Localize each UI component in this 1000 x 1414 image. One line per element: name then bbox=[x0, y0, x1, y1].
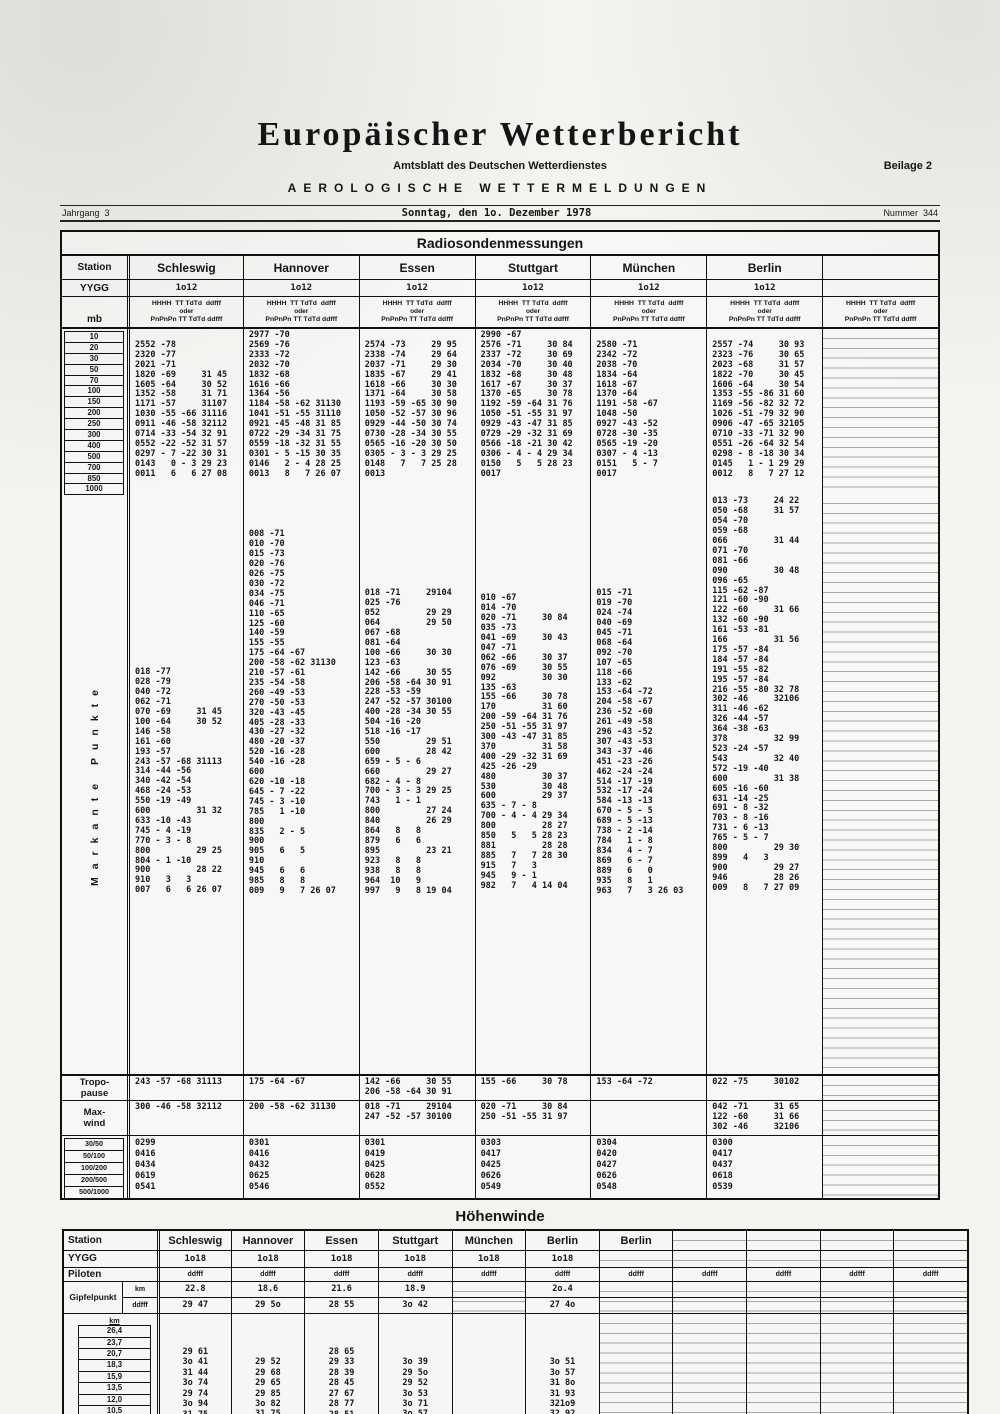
gipfel-ddfff-value bbox=[673, 1298, 746, 1313]
hw-yygg-row: YYGG 1o181o181o181o181o181o18 bbox=[64, 1250, 967, 1267]
hw-station-header-row: Station SchleswigHannoverEssenStuttgartM… bbox=[64, 1231, 967, 1250]
colhead-line1: HHHH TT TdTd ddfff bbox=[130, 299, 243, 308]
gipfelpunkt-cell: 18.629 5o bbox=[231, 1282, 305, 1313]
yygg-value: 1o12 bbox=[590, 280, 706, 296]
wind-value: 29 33 bbox=[305, 1357, 378, 1367]
wind-value: 28 65 bbox=[305, 1347, 378, 1357]
gipfel-km-value: 22.8 bbox=[160, 1282, 231, 1298]
thickness-value: 0417 bbox=[476, 1149, 591, 1160]
data-line: 153 -64 -72 bbox=[591, 1078, 706, 1088]
colhead-oder: oder bbox=[476, 308, 591, 315]
thickness-value: 0301 bbox=[244, 1138, 359, 1149]
gipfel-km-value: 18.9 bbox=[379, 1282, 452, 1298]
wind-value bbox=[526, 1347, 599, 1357]
wind-value bbox=[600, 1357, 673, 1367]
wind-value bbox=[894, 1347, 967, 1357]
thickness-value: 0546 bbox=[244, 1182, 359, 1193]
tropopause-cell: 142 -66 30 55206 -58 -64 30 91 bbox=[359, 1076, 475, 1100]
wind-value bbox=[894, 1409, 967, 1414]
tropopause-cell: 022 -75 30102 bbox=[706, 1076, 822, 1100]
wind-value bbox=[673, 1357, 746, 1367]
data-line: 982 7 4 14 04 bbox=[476, 882, 591, 892]
gipfelpunkt-label: Gipfelpunkt bbox=[64, 1282, 122, 1313]
colhead-line1: HHHH TT TdTd ddfff bbox=[244, 299, 359, 308]
wind-column bbox=[672, 1314, 746, 1414]
wind-value bbox=[600, 1347, 673, 1357]
piloten-ddfff-header: ddfff bbox=[525, 1268, 599, 1281]
wind-value bbox=[747, 1326, 820, 1336]
colhead-oder: oder bbox=[707, 308, 822, 315]
gipfelpunkt-cell bbox=[599, 1282, 673, 1313]
colhead-line1: HHHH TT TdTd ddfff bbox=[707, 299, 822, 308]
empty-column bbox=[822, 494, 938, 1074]
data-column: 2580 -712342 -722038 -701834 -641618 -67… bbox=[590, 329, 706, 494]
wind-value bbox=[821, 1409, 894, 1414]
wind-value bbox=[453, 1389, 526, 1399]
gipfel-km-value bbox=[821, 1282, 894, 1298]
spacer-line bbox=[160, 1316, 231, 1326]
colhead-line2: PnPnPn TT TdTd ddfff bbox=[823, 315, 938, 324]
thickness-column: 03030417042506260549 bbox=[475, 1136, 591, 1198]
thickness-label-column: 30/5050/100100/200200/500500/1000 bbox=[62, 1136, 127, 1198]
wind-value bbox=[821, 1368, 894, 1378]
masthead: Europäischer Wetterbericht Amtsblatt des… bbox=[0, 0, 1000, 222]
wind-value bbox=[673, 1378, 746, 1388]
colhead-line2: PnPnPn TT TdTd ddfff bbox=[476, 315, 591, 324]
wind-value bbox=[379, 1337, 452, 1347]
wind-value bbox=[600, 1399, 673, 1409]
data-line: 243 -57 -68 31113 bbox=[130, 1078, 243, 1088]
gipfel-ddfff-value bbox=[747, 1298, 820, 1313]
wind-value bbox=[673, 1409, 746, 1414]
maxwind-cell: 300 -46 -58 32112 bbox=[127, 1101, 243, 1135]
spacer-line bbox=[379, 1316, 452, 1326]
thickness-value: 0541 bbox=[130, 1182, 243, 1193]
gipfelpunkt-cell: 21.628 55 bbox=[304, 1282, 378, 1313]
thickness-value: 0618 bbox=[707, 1171, 822, 1182]
thickness-column: 03010416043206250546 bbox=[243, 1136, 359, 1198]
wind-value: 3o 57 bbox=[379, 1409, 452, 1414]
colhead-line2: PnPnPn TT TdTd ddfff bbox=[360, 315, 475, 324]
colhead-line2: PnPnPn TT TdTd ddfff bbox=[130, 315, 243, 324]
wind-value: 3o 94 bbox=[160, 1399, 231, 1409]
km-label-column: km26,423,720,718,315,913,512,010,59,07,2… bbox=[64, 1314, 157, 1414]
wind-value: 29 65 bbox=[232, 1378, 305, 1388]
gipfel-ddfff-label: ddfff bbox=[122, 1298, 157, 1313]
spacer-line bbox=[526, 1316, 599, 1326]
wind-value bbox=[453, 1347, 526, 1357]
spacer-line bbox=[747, 1316, 820, 1326]
tropopause-cell: 155 -66 30 78 bbox=[475, 1076, 591, 1100]
piloten-ddfff-header: ddfff bbox=[157, 1268, 231, 1281]
thickness-value: 0626 bbox=[591, 1171, 706, 1182]
gipfel-ddfff-value bbox=[894, 1298, 967, 1313]
wind-value bbox=[453, 1409, 526, 1414]
wind-value bbox=[453, 1357, 526, 1367]
significant-column: 008 -71010 -70015 -73020 -76026 -75030 -… bbox=[243, 494, 359, 1074]
wind-value: 3o 74 bbox=[160, 1378, 231, 1388]
gipfelpunkt-cell: 18.93o 42 bbox=[378, 1282, 452, 1313]
column-headers: HHHH TT TdTd ddfffoderPnPnPn TT TdTd ddf… bbox=[359, 297, 475, 327]
gipfelpunkt-row: Gipfelpunkt km ddfff 22.829 4718.629 5o2… bbox=[64, 1281, 967, 1313]
wind-value: 28 51 bbox=[305, 1410, 378, 1414]
significant-levels-body: Markante Punkte 018 -77028 -79040 -72062… bbox=[62, 494, 938, 1074]
wind-value bbox=[894, 1378, 967, 1388]
data-line: 0017 bbox=[591, 470, 706, 480]
gipfelpunkt-cell bbox=[746, 1282, 820, 1313]
data-line: 200 -58 -62 31130 bbox=[244, 1103, 359, 1113]
wind-value: 3o 71 bbox=[379, 1399, 452, 1409]
gipfelpunkt-cell: 2o.427 4o bbox=[525, 1282, 599, 1313]
colhead-oder: oder bbox=[130, 308, 243, 315]
wind-value: 29 52 bbox=[379, 1378, 452, 1388]
gipfel-km-value bbox=[894, 1282, 967, 1298]
colhead-line2: PnPnPn TT TdTd ddfff bbox=[244, 315, 359, 324]
yygg-label: YYGG bbox=[62, 280, 127, 296]
station-header: Schleswig bbox=[127, 256, 243, 279]
wind-value bbox=[453, 1337, 526, 1347]
piloten-ddfff-header: ddfff bbox=[378, 1268, 452, 1281]
wind-value bbox=[821, 1389, 894, 1399]
hw-station-header: Stuttgart bbox=[378, 1231, 452, 1250]
hw-station-header: Hannover bbox=[231, 1231, 305, 1250]
gipfelpunkt-cell bbox=[672, 1282, 746, 1313]
empty-column bbox=[822, 1076, 938, 1100]
gipfel-km-value: 2o.4 bbox=[526, 1282, 599, 1298]
wind-value bbox=[894, 1399, 967, 1409]
gipfelpunkt-cell: 22.829 47 bbox=[157, 1282, 231, 1313]
wind-value: 29 85 bbox=[232, 1389, 305, 1399]
wind-value bbox=[821, 1357, 894, 1367]
thickness-value: 0628 bbox=[360, 1171, 475, 1182]
column-headers: HHHH TT TdTd ddfffoderPnPnPn TT TdTd ddf… bbox=[822, 297, 938, 327]
wind-value: 3o 53 bbox=[379, 1389, 452, 1399]
wind-value bbox=[894, 1357, 967, 1367]
data-line: 155 -66 30 78 bbox=[476, 1078, 591, 1088]
yygg-value: 1o12 bbox=[359, 280, 475, 296]
wind-column: 29 613o 4131 443o 7429 743o 9431 7532 52… bbox=[157, 1314, 231, 1414]
thickness-value: 0625 bbox=[244, 1171, 359, 1182]
wind-value bbox=[821, 1378, 894, 1388]
wind-value: 28 77 bbox=[305, 1399, 378, 1409]
maxwind-cell: 042 -71 31 65122 -60 31 66302 -46 32106 bbox=[706, 1101, 822, 1135]
thickness-value: 0301 bbox=[360, 1138, 475, 1149]
yygg-value: 1o12 bbox=[127, 280, 243, 296]
data-line: 007 6 6 26 07 bbox=[130, 886, 243, 896]
empty-column bbox=[822, 1136, 938, 1198]
gipfelpunkt-cell bbox=[820, 1282, 894, 1313]
issue-date: Sonntag, den 1o. Dezember 1978 bbox=[402, 207, 592, 219]
column-headers: HHHH TT TdTd ddfffoderPnPnPn TT TdTd ddf… bbox=[127, 297, 243, 327]
thickness-value: 0304 bbox=[591, 1138, 706, 1149]
thickness-body: 30/5050/100100/200200/500500/1000 029904… bbox=[62, 1135, 938, 1198]
thickness-value: 0427 bbox=[591, 1160, 706, 1171]
dateline: Jahrgang 3 Sonntag, den 1o. Dezember 197… bbox=[60, 205, 940, 222]
wind-column bbox=[893, 1314, 967, 1414]
column-headers: HHHH TT TdTd ddfffoderPnPnPn TT TdTd ddf… bbox=[243, 297, 359, 327]
hw-yygg-value: 1o18 bbox=[378, 1251, 452, 1267]
significant-column: 018 -77028 -79040 -72062 -71070 -69 31 4… bbox=[127, 494, 243, 1074]
wind-value: 3o 82 bbox=[232, 1399, 305, 1409]
yygg-value: 1o12 bbox=[243, 280, 359, 296]
thickness-value: 0548 bbox=[591, 1182, 706, 1193]
wind-value bbox=[526, 1337, 599, 1347]
significant-column: 018 -71 29104025 -76052 29 29064 29 5006… bbox=[359, 494, 475, 1074]
pressure-level-body: 1020305070100150200250300400500700850100… bbox=[62, 327, 938, 494]
radiosonde-table-title: Radiosondenmessungen bbox=[62, 232, 938, 256]
wind-value bbox=[453, 1368, 526, 1378]
thickness-value: 0416 bbox=[130, 1149, 243, 1160]
hoehenwinde-table: Station SchleswigHannoverEssenStuttgartM… bbox=[62, 1229, 969, 1414]
wind-value bbox=[821, 1326, 894, 1336]
column-header-row: mb HHHH TT TdTd ddfffoderPnPnPn TT TdTd … bbox=[62, 296, 938, 327]
yygg-value: 1o12 bbox=[706, 280, 822, 296]
thickness-value: 0437 bbox=[707, 1160, 822, 1171]
maxwind-cell bbox=[590, 1101, 706, 1135]
significant-column: 010 -67014 -70020 -71 30 84035 -73041 -6… bbox=[475, 494, 591, 1074]
wind-value bbox=[453, 1399, 526, 1409]
wind-value bbox=[232, 1347, 305, 1357]
data-line: 0011 6 6 27 08 bbox=[130, 470, 243, 480]
hw-station-header: Essen bbox=[304, 1231, 378, 1250]
empty-station-header bbox=[822, 256, 938, 279]
wind-value bbox=[305, 1337, 378, 1347]
wind-column bbox=[820, 1314, 894, 1414]
data-column: 2574 -73 29 952338 -74 29 642037 -71 29 … bbox=[359, 329, 475, 494]
tropopause-cell: 243 -57 -68 31113 bbox=[127, 1076, 243, 1100]
wind-value bbox=[600, 1337, 673, 1347]
data-column: 2990 -672576 -71 30 842337 -72 30 692034… bbox=[475, 329, 591, 494]
wind-value bbox=[673, 1326, 746, 1336]
data-line: 300 -46 -58 32112 bbox=[130, 1103, 243, 1113]
wind-value bbox=[894, 1368, 967, 1378]
wind-value bbox=[453, 1378, 526, 1388]
wind-value bbox=[821, 1337, 894, 1347]
wind-value bbox=[747, 1409, 820, 1414]
data-line: 206 -58 -64 30 91 bbox=[360, 1088, 475, 1098]
data-column: 2557 -74 30 932323 -76 30 652023 -68 31 … bbox=[706, 329, 822, 494]
station-header: Berlin bbox=[706, 256, 822, 279]
gipfel-km-value bbox=[747, 1282, 820, 1298]
thickness-value: 0303 bbox=[476, 1138, 591, 1149]
wind-value bbox=[673, 1399, 746, 1409]
wind-value bbox=[894, 1337, 967, 1347]
hw-yygg-value bbox=[599, 1251, 673, 1267]
thickness-value: 0417 bbox=[707, 1149, 822, 1160]
scanned-weather-report-page: Europäischer Wetterbericht Amtsblatt des… bbox=[0, 0, 1000, 1414]
station-label: Station bbox=[62, 256, 127, 279]
hw-station-header: München bbox=[452, 1231, 526, 1250]
wind-value bbox=[747, 1357, 820, 1367]
thickness-value: 0619 bbox=[130, 1171, 243, 1182]
wind-value bbox=[305, 1326, 378, 1336]
wind-value: 3o 39 bbox=[379, 1357, 452, 1367]
hw-yygg-value bbox=[893, 1251, 967, 1267]
column-headers: HHHH TT TdTd ddfffoderPnPnPn TT TdTd ddf… bbox=[706, 297, 822, 327]
markante-punkte-label-cell: Markante Punkte bbox=[62, 494, 127, 1074]
wind-value bbox=[600, 1389, 673, 1399]
station-header: München bbox=[590, 256, 706, 279]
spacer-line bbox=[821, 1316, 894, 1326]
gipfel-ddfff-value bbox=[600, 1298, 673, 1313]
km-label: 10,5 bbox=[78, 1405, 151, 1414]
gipfel-ddfff-value: 29 47 bbox=[160, 1298, 231, 1313]
wind-value bbox=[673, 1347, 746, 1357]
gipfel-km-value bbox=[600, 1282, 673, 1298]
hw-yygg-value bbox=[672, 1251, 746, 1267]
yygg-row: YYGG 1o121o121o121o121o121o12 bbox=[62, 279, 938, 296]
data-line: 963 7 3 26 03 bbox=[591, 887, 706, 897]
data-line: 022 -75 30102 bbox=[707, 1078, 822, 1088]
hw-yygg-value: 1o18 bbox=[304, 1251, 378, 1267]
thickness-value: 0425 bbox=[476, 1160, 591, 1171]
wind-value: 28 39 bbox=[305, 1368, 378, 1378]
significant-column: 015 -71019 -70024 -74040 -69045 -71068 -… bbox=[590, 494, 706, 1074]
piloten-label: Piloten bbox=[64, 1268, 157, 1281]
thickness-column: 03000417043706180539 bbox=[706, 1136, 822, 1198]
wind-value bbox=[821, 1399, 894, 1409]
data-line: 0013 8 7 26 07 bbox=[244, 470, 359, 480]
station-header: Essen bbox=[359, 256, 475, 279]
hw-yygg-value: 1o18 bbox=[525, 1251, 599, 1267]
hw-station-label: Station bbox=[64, 1231, 157, 1250]
spacer-line bbox=[600, 1316, 673, 1326]
nummer: Nummer 344 bbox=[883, 208, 938, 218]
wind-value: 29 68 bbox=[232, 1368, 305, 1378]
data-line: 302 -46 32106 bbox=[707, 1123, 822, 1133]
wind-value bbox=[526, 1326, 599, 1336]
data-line: 009 9 7 26 07 bbox=[244, 887, 359, 897]
spacer-line bbox=[453, 1316, 526, 1326]
tropopause-cell: 153 -64 -72 bbox=[590, 1076, 706, 1100]
radiosonde-table: Radiosondenmessungen Station SchleswigHa… bbox=[60, 230, 940, 1200]
station-header: Stuttgart bbox=[475, 256, 591, 279]
markante-punkte-label: Markante Punkte bbox=[89, 682, 101, 886]
spacer-line bbox=[232, 1316, 305, 1326]
gipfel-km-label: km bbox=[122, 1282, 157, 1298]
piloten-ddfff-header: ddfff bbox=[231, 1268, 305, 1281]
significant-column: 013 -73 24 22050 -68 31 57054 -70059 -68… bbox=[706, 494, 822, 1074]
wind-value bbox=[379, 1347, 452, 1357]
wind-value: 29 52 bbox=[232, 1357, 305, 1367]
piloten-ddfff-header: ddfff bbox=[893, 1268, 967, 1281]
colhead-oder: oder bbox=[591, 308, 706, 315]
wind-value: 31 44 bbox=[160, 1368, 231, 1378]
wind-value bbox=[673, 1368, 746, 1378]
data-column: 2552 -782320 -772021 -711820 -69 31 4516… bbox=[127, 329, 243, 494]
wind-column bbox=[599, 1314, 673, 1414]
wind-column bbox=[452, 1314, 526, 1414]
wind-value: 28 45 bbox=[305, 1378, 378, 1388]
thickness-value: 0539 bbox=[707, 1182, 822, 1193]
wind-column: 28 6529 3328 3928 4527 6728 7728 5128 39… bbox=[304, 1314, 378, 1414]
wind-value bbox=[894, 1389, 967, 1399]
tropopause-row: Tropo-pause 243 -57 -68 31113175 -64 -67… bbox=[62, 1074, 938, 1100]
gipfel-ddfff-value bbox=[453, 1298, 526, 1313]
wind-value bbox=[600, 1378, 673, 1388]
spacer-line bbox=[894, 1316, 967, 1326]
thickness-value: 0432 bbox=[244, 1160, 359, 1171]
hw-yygg-value bbox=[820, 1251, 894, 1267]
piloten-ddfff-header: ddfff bbox=[672, 1268, 746, 1281]
colhead-oder: oder bbox=[244, 308, 359, 315]
wind-value bbox=[160, 1326, 231, 1336]
hoehenwinde-title: Höhenwinde bbox=[0, 1208, 1000, 1225]
page-subtitle: Amtsblatt des Deutschen Wetterdienstes bbox=[0, 160, 1000, 172]
gipfelpunkt-cell bbox=[893, 1282, 967, 1313]
gipfelpunkt-label-cell: Gipfelpunkt km ddfff bbox=[64, 1282, 157, 1313]
jahrgang: Jahrgang 3 bbox=[62, 208, 110, 218]
piloten-ddfff-header: ddfff bbox=[820, 1268, 894, 1281]
thickness-label: 500/1000 bbox=[64, 1186, 124, 1199]
thickness-value: 0552 bbox=[360, 1182, 475, 1193]
hw-station-header: Schleswig bbox=[157, 1231, 231, 1250]
wind-value: 31 75 bbox=[160, 1410, 231, 1414]
wind-value bbox=[600, 1326, 673, 1336]
wind-value bbox=[747, 1368, 820, 1378]
empty-column bbox=[822, 329, 938, 494]
maxwind-cell: 200 -58 -62 31130 bbox=[243, 1101, 359, 1135]
thickness-value: 0549 bbox=[476, 1182, 591, 1193]
yygg-value: 1o12 bbox=[475, 280, 591, 296]
wind-value: 29 74 bbox=[160, 1389, 231, 1399]
yygg-value bbox=[822, 280, 938, 296]
maxwind-cell: 018 -71 29104247 -52 -57 30100 bbox=[359, 1101, 475, 1135]
piloten-ddfff-header: ddfff bbox=[746, 1268, 820, 1281]
wind-value bbox=[379, 1326, 452, 1336]
mb-label: mb bbox=[62, 297, 127, 327]
hw-empty-header bbox=[672, 1231, 746, 1250]
colhead-oder: oder bbox=[360, 308, 475, 315]
wind-column bbox=[746, 1314, 820, 1414]
spacer-line bbox=[673, 1316, 746, 1326]
wind-value bbox=[747, 1399, 820, 1409]
wind-value bbox=[453, 1326, 526, 1336]
gipfelpunkt-cell bbox=[452, 1282, 526, 1313]
hw-station-header: Berlin bbox=[599, 1231, 673, 1250]
colhead-line1: HHHH TT TdTd ddfff bbox=[823, 299, 938, 308]
wind-value: 29 5o bbox=[379, 1368, 452, 1378]
column-headers: HHHH TT TdTd ddfffoderPnPnPn TT TdTd ddf… bbox=[475, 297, 591, 327]
wind-value bbox=[747, 1347, 820, 1357]
wind-value: 27 67 bbox=[305, 1389, 378, 1399]
tropopause-cell: 175 -64 -67 bbox=[243, 1076, 359, 1100]
data-line: 175 -64 -67 bbox=[244, 1078, 359, 1088]
thickness-value: 0425 bbox=[360, 1160, 475, 1171]
colhead-line1: HHHH TT TdTd ddfff bbox=[476, 299, 591, 308]
thickness-value: 0626 bbox=[476, 1171, 591, 1182]
wind-value: 31 75 bbox=[232, 1409, 305, 1414]
beilage-label: Beilage 2 bbox=[884, 160, 932, 172]
hw-yygg-value: 1o18 bbox=[231, 1251, 305, 1267]
data-line: 250 -51 -55 31 97 bbox=[476, 1113, 591, 1123]
gipfel-ddfff-value: 27 4o bbox=[526, 1298, 599, 1313]
data-line: 0017 bbox=[476, 470, 591, 480]
wind-value: 3o 51 bbox=[526, 1357, 599, 1367]
hw-empty-header bbox=[746, 1231, 820, 1250]
altitude-winds-body: km26,423,720,718,315,913,512,010,59,07,2… bbox=[64, 1313, 967, 1414]
hw-yygg-value: 1o18 bbox=[452, 1251, 526, 1267]
gipfel-ddfff-value: 29 5o bbox=[232, 1298, 305, 1313]
gipfel-ddfff-value: 28 55 bbox=[305, 1298, 378, 1313]
wind-value: 31 93 bbox=[526, 1389, 599, 1399]
hw-empty-header bbox=[820, 1231, 894, 1250]
wind-value: 3o 41 bbox=[160, 1357, 231, 1367]
colhead-line1: HHHH TT TdTd ddfff bbox=[591, 299, 706, 308]
wind-value bbox=[232, 1326, 305, 1336]
spacer-line bbox=[305, 1316, 378, 1326]
thickness-value: 0434 bbox=[130, 1160, 243, 1171]
